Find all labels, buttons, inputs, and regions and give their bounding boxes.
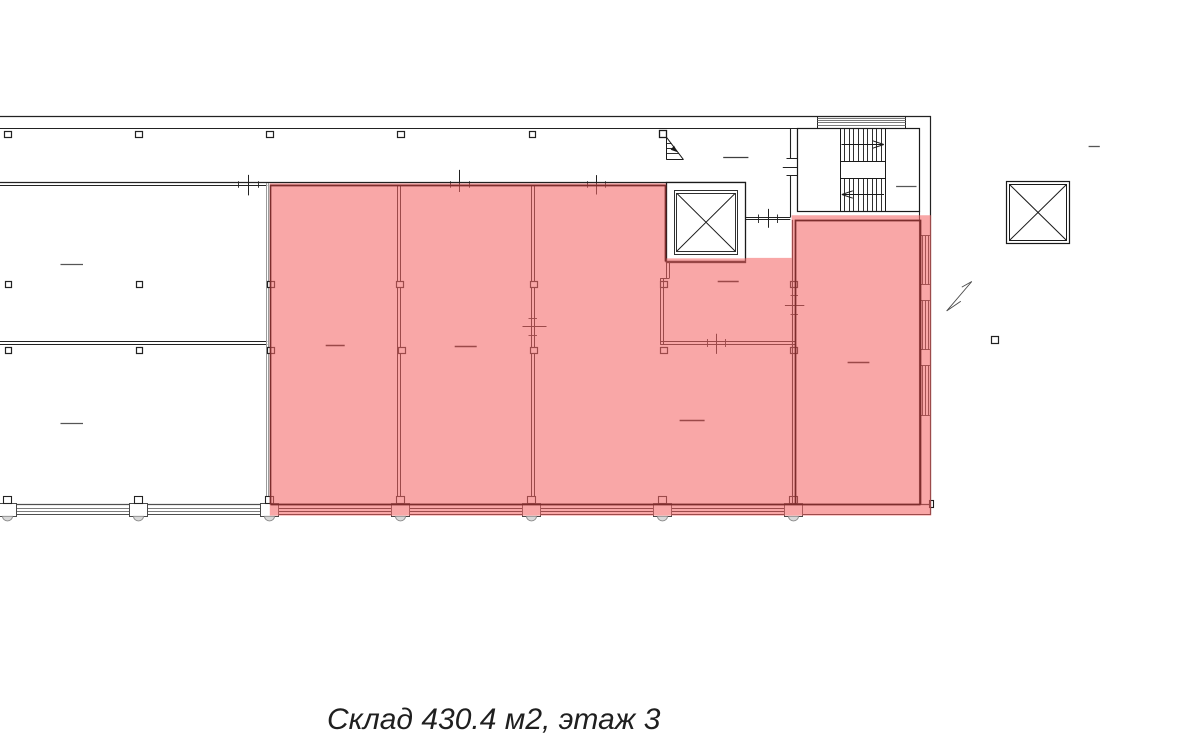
svg-text:Склад 430.4 м2, этаж 3: Склад 430.4 м2, этаж 3: [327, 703, 661, 736]
